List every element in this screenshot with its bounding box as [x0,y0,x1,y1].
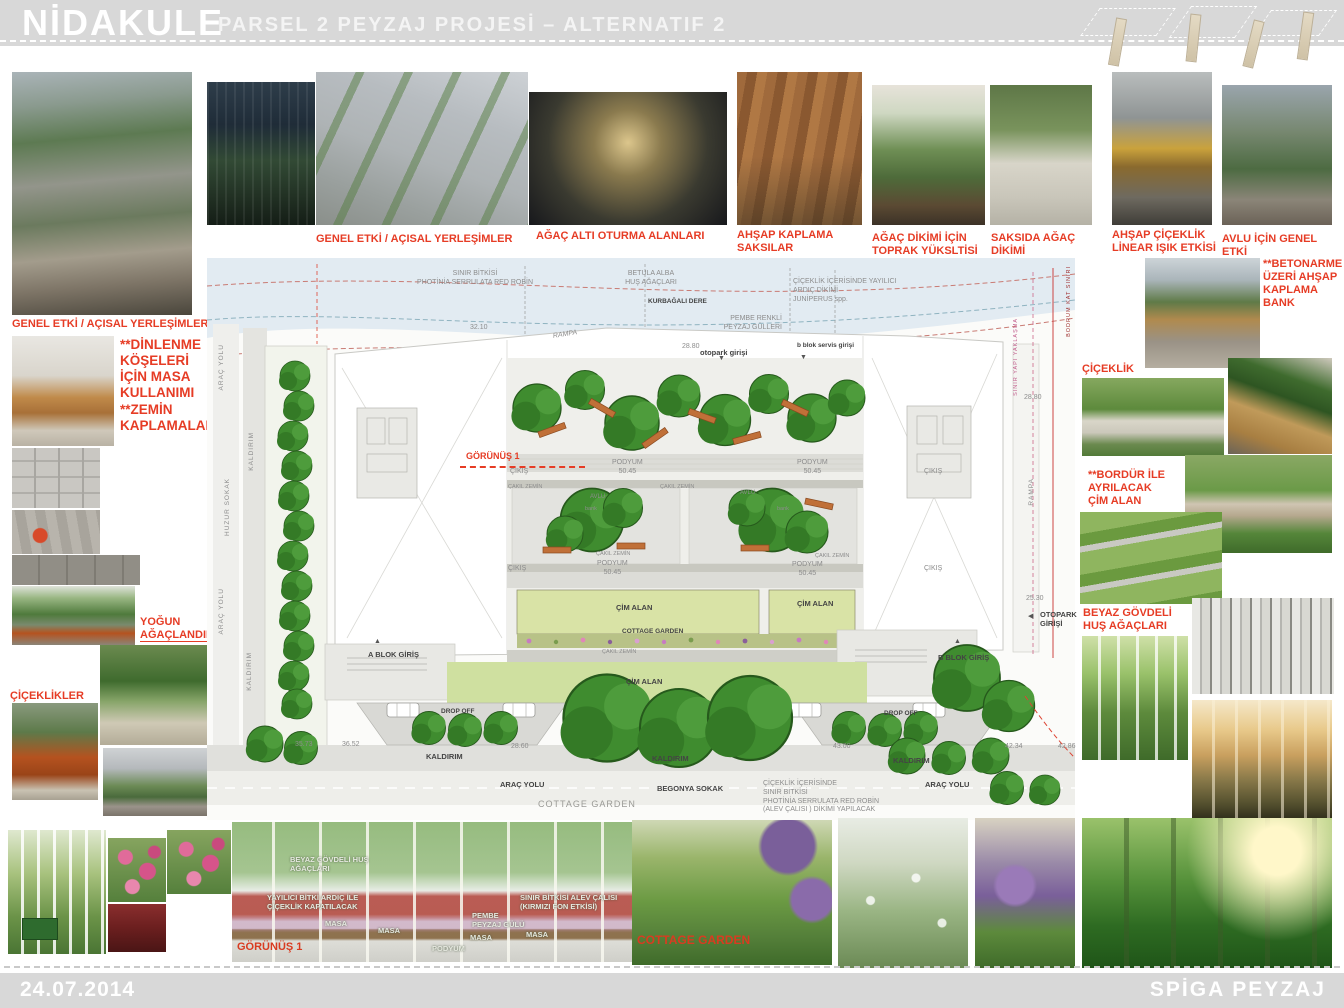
photo-tree-in-gravel [990,85,1092,225]
photo-night-plaza [529,92,727,225]
section-label: MASA [470,933,492,942]
plan-annotation: KALDIRIM [246,652,254,691]
company-label: SPİGA PEYZAJ [1150,978,1326,1002]
sketch-box-icon [1080,8,1176,36]
plan-annotation: ÇİÇEKLİK İÇERİSİNDE YAYILICI ARDIÇ DİKİM… [793,278,896,304]
photo-roof-bench-wall [1145,258,1260,368]
plan-annotation: COTTAGE GARDEN [538,799,636,810]
garden-sign [22,918,58,940]
plan-annotation: bank [777,506,789,513]
plan-annotation: BEGONYA SOKAK [657,784,723,793]
photo-building-planters [103,748,215,816]
photo-picnic-tables [12,336,114,446]
plan-annotation: DROP OFF [441,708,474,716]
arrow-down-icon: ▼ [800,354,807,361]
photo-birch-forest-green [1082,636,1188,760]
plan-annotation: 36.52 [342,741,360,750]
photo-pavers-dark [12,555,140,585]
plan-annotation: PODYUM 50.45 [612,459,643,477]
plan-annotation: PODYUM 50.45 [792,561,823,579]
photo-dark-courtyard [207,82,315,225]
sketch-box-icon [1253,10,1337,36]
section-label: YAYILICI BİTKİ ARDIÇ İLE ÇİÇEKLİK KAPATI… [267,893,358,912]
plan-annotation: HUZUR SOKAK [224,478,232,536]
plan-annotation: SINIR YAPI YAKLAŞMA [1013,318,1020,396]
photo-street-benches [12,72,192,315]
plan-annotation: AVLU [740,490,755,498]
photo-street-trees [12,586,135,645]
photo-caption: AHŞAP ÇİÇEKLİK LİNEAR IŞIK ETKİSİ [1112,229,1216,255]
leader-line [140,641,216,642]
photo-pavers-cone [12,510,100,554]
plan-annotation: ÇIKIŞ [508,565,526,574]
plan-annotation: 28.80 [1024,394,1042,403]
cottage-garden-label: COTTAGE GARDEN [637,933,750,947]
plan-annotation: COTTAGE GARDEN [622,628,683,636]
plan-annotation: RAMPA [1028,478,1036,506]
plan-annotation: 28.80 [682,343,700,352]
photo-corten-planters [12,703,98,800]
header-bar: NİDAKULE PARSEL 2 PEYZAJ PROJESİ – ALTER… [0,0,1344,46]
plan-annotation: PODYUM 50.45 [597,560,628,578]
photo-caption: AVLU İÇİN GENEL ETKİ [1222,233,1344,259]
plan-annotation: KALDIRIM [893,756,930,765]
arrow-up-icon: ▲ [954,638,961,645]
photo-roses-pink-1 [108,838,166,902]
plan-annotation: OTOPARK GİRİŞİ [1040,610,1077,629]
plan-annotation: ÇAKIL ZEMİN [596,551,630,558]
plan-annotation: ÇİM ALAN [626,677,662,686]
photo-birch-grove [8,830,106,954]
photo-caption: AHŞAP KAPLAMA SAKSILAR [737,229,833,255]
plan-annotation: AVLU [590,494,605,502]
photo-red-foliage [108,904,166,952]
plan-annotation: 42.34 [1005,743,1023,752]
plan-annotation: KALDIRIM [426,752,463,761]
plan-annotation: ARAÇ YOLU [500,780,544,789]
left-note: **DİNLENME KÖŞELERİ İÇİN MASA KULLANIMI [120,337,201,401]
plan-annotation: KALDIRIM [248,432,256,471]
section-label: PODYUM [432,944,465,953]
photo-bench-corner-planter [1228,358,1332,454]
plan-annotation: ÇAKIL ZEMİN [660,484,694,491]
section-cut-label: GÖRÜNÜŞ 1 [466,451,520,462]
plan-annotation: ÇAKIL ZEMİN [815,553,849,560]
site-plan-graphic [207,258,1075,820]
project-subtitle: PARSEL 2 PEYZAJ PROJESİ – ALTERNATIF 2 [218,14,726,37]
photo-caption: GENEL ETKİ / AÇISAL YERLEŞİMLER [12,318,208,331]
date-label: 24.07.2014 [20,978,135,1002]
header-dashed-line [0,40,1344,42]
section-label: MASA [378,926,400,935]
right-note: ÇİÇEKLİK [1082,363,1134,376]
right-note: **BORDÜR İLE AYRILACAK ÇİM ALAN [1088,469,1165,508]
photo-birch-trunks [1192,598,1334,694]
section-title: GÖRÜNÜŞ 1 [237,941,302,955]
photo-caption: SAKSIDA AĞAÇ DİKİMİ [991,232,1075,258]
right-note: **BETONARME ÜZERİ AHŞAP KAPLAMA BANK [1263,258,1342,310]
plan-annotation: KALDIRIM [652,754,689,763]
arrow-up-icon: ▲ [374,638,381,645]
footer-bar [0,973,1344,1008]
left-note: **ZEMİN KAPLAMALAR [120,402,215,434]
section-label: BEYAZ GÖVDELİ HUŞ AĞAÇLARI [290,855,369,874]
photo-white-meadow [838,818,968,968]
plan-annotation: SINIR BİTKİSİ PHOTİNİA SERRULATA RED ROB… [395,270,555,288]
plan-annotation: ÇIKIŞ [924,565,942,574]
plan-annotation: 32.10 [470,324,488,333]
plan-annotation: KURBAĞALI DERE [648,298,707,306]
plan-annotation: 43.00 [833,743,851,752]
photo-roof-terrace [872,85,985,225]
plan-annotation: ÇİM ALAN [616,603,652,612]
plan-annotation: bank [585,506,597,513]
right-note: BEYAZ GÖVDELİ HUŞ AĞAÇLARI [1083,607,1172,633]
plan-annotation: BODRUM KAT SINIRI [1066,266,1073,337]
photo-caption: GENEL ETKİ / AÇISAL YERLEŞİMLER [316,233,512,246]
plan-annotation: 35.73 [295,741,313,750]
plan-annotation: 42.86 [1058,743,1076,752]
arrow-down-icon: ▼ [718,355,725,362]
presentation-board: NİDAKULE PARSEL 2 PEYZAJ PROJESİ – ALTER… [0,0,1344,1008]
plan-annotation: ÇİM ALAN [797,599,833,608]
section-label: PEMBE PEYZAJ GÜLÜ [472,911,525,930]
plan-annotation: ARAÇ YOLU [218,344,226,390]
sketch-box-icon [1169,6,1257,38]
plan-annotation: ARAÇ YOLU [925,780,969,789]
plan-annotation: ÇIKIŞ [510,468,528,477]
footer-dashed-line [4,966,1340,968]
section-label: SINIR BİTKİSİ ALEV ÇALISI (KIRMIZI FON E… [520,893,617,912]
photo-birch-forest-sunset [1192,700,1332,820]
plan-annotation: 25.30 [1026,595,1044,604]
plan-annotation: ÇAKIL ZEMİN [602,649,636,656]
plan-annotation: A BLOK GİRİŞ [368,650,419,659]
photo-caption: AĞAÇ ALTI OTURMA ALANLARI [536,230,704,243]
section-label: MASA [526,930,548,939]
plan-annotation: PEMBE RENKLİ PEYZAJ GÜLLERİ [702,315,782,333]
plan-annotation: ÇIKIŞ [924,468,942,477]
photo-lawn-terraces [1080,512,1222,604]
plan-annotation: DROP OFF [884,710,917,718]
photo-angled-plaza [316,72,528,225]
photo-pavers-light [12,448,100,508]
photo-wood-deck-planters [737,72,862,225]
plan-annotation: ARAÇ YOLU [218,588,226,634]
plan-annotation: PODYUM 50.45 [797,459,828,477]
plan-annotation: ÇİÇEKLİK İÇERİSİNDE SINIR BİTKİSİ PHOTİN… [763,780,879,815]
site-plan [207,258,1075,820]
photo-courtyard-general [1222,85,1332,225]
photo-roses-pink-2 [167,830,231,894]
plan-annotation: BETULA ALBA HUŞ AĞAÇLARI [596,270,706,288]
section-label: MASA [325,919,347,928]
project-title: NİDAKULE [22,2,224,44]
plan-annotation: ÇAKIL ZEMİN [508,484,542,491]
left-note: ÇİÇEKLİKLER [10,690,84,703]
photo-lawn-wall [1082,378,1224,456]
photo-purple-garden [975,818,1075,968]
plan-annotation: b blok servis girişi [797,342,854,350]
photo-caption: AĞAÇ DİKİMİ İÇİN TOPRAK YÜKSLTİSİ [872,232,978,258]
arrow-left-icon: ◀ [1028,612,1033,620]
photo-linear-bench-light [1112,72,1212,225]
photo-sunny-forest [1082,818,1332,968]
plan-annotation: B BLOK GİRİŞ [938,653,989,662]
plan-annotation: 28.60 [511,743,529,752]
